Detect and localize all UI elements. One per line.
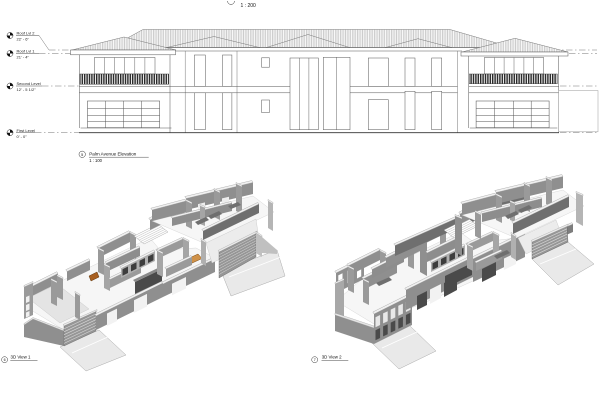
svg-text:21' - 4": 21' - 4" [17, 55, 30, 60]
svg-text:First Level: First Level [17, 128, 36, 133]
svg-text:5: 5 [81, 153, 83, 157]
svg-text:3D View 2: 3D View 2 [322, 355, 342, 360]
svg-text:1 : 200: 1 : 200 [241, 3, 257, 9]
svg-text:1 : 100: 1 : 100 [89, 158, 102, 163]
svg-text:12' - 5 1/2": 12' - 5 1/2" [17, 87, 37, 92]
svg-text:22' - 6": 22' - 6" [17, 37, 30, 42]
svg-text:Roof Lvl 1: Roof Lvl 1 [17, 49, 36, 54]
svg-text:0' - 0": 0' - 0" [17, 134, 28, 139]
svg-text:Roof Lvl 2: Roof Lvl 2 [17, 31, 36, 36]
svg-text:Second Level: Second Level [17, 81, 41, 86]
svg-text:Palm Avenue Elevation: Palm Avenue Elevation [89, 152, 137, 157]
svg-text:7: 7 [314, 358, 316, 362]
svg-text:6: 6 [4, 358, 6, 362]
svg-text:3D View 1: 3D View 1 [11, 355, 31, 360]
